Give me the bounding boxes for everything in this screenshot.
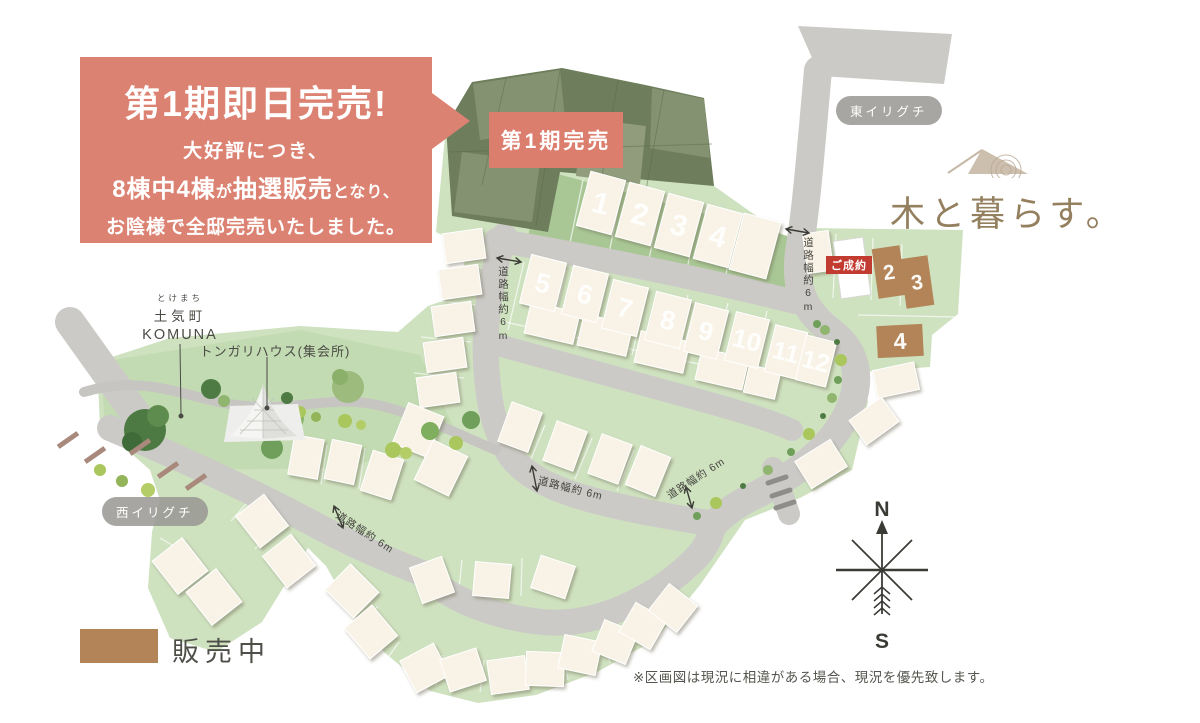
tree-icon (94, 464, 106, 476)
bush-icon (740, 483, 746, 489)
bush-icon (820, 413, 826, 419)
tree-icon (116, 475, 128, 487)
bush-icon (834, 339, 840, 345)
bush-icon (827, 393, 837, 403)
tree-icon (338, 414, 352, 428)
tree-icon (201, 379, 221, 399)
bush-icon (813, 320, 821, 328)
bush-icon (763, 465, 773, 475)
logo-text: 木と暮らす。 (890, 186, 1126, 237)
contracted-badge: ご成約 (826, 256, 872, 274)
road-width-label-2: 道路幅約6m (801, 237, 816, 315)
house (473, 561, 512, 598)
bush-icon (834, 376, 842, 384)
disclaimer-note: ※区画図は現況に相違がある場合、現況を優先致します。 (633, 666, 993, 686)
east-entrance-label: 東イリグチ (836, 96, 942, 125)
bush-icon (835, 354, 847, 366)
callout-line2: 8棟中4棟が抽選販売となり、 (80, 169, 432, 204)
callout-line1: 大好評につき、 (80, 136, 432, 163)
bench-icon (84, 446, 107, 464)
compass-north: N (874, 498, 889, 521)
tree-icon (400, 447, 412, 459)
house (558, 634, 602, 675)
tree-icon (385, 442, 401, 458)
lot-number: 4 (893, 328, 907, 355)
tree-icon (141, 483, 155, 497)
bush-icon (820, 325, 830, 335)
house (423, 337, 467, 372)
compass: N S (826, 490, 938, 655)
legend-for-sale-label: 販売中 (172, 630, 271, 669)
house (288, 435, 324, 480)
town-name: 土気町 (128, 305, 232, 325)
tree-icon (332, 369, 348, 385)
tree-icon (218, 395, 230, 407)
tree-icon (147, 405, 169, 427)
bush-icon (710, 497, 722, 509)
phase1-sold-label: 第1期完売 (489, 112, 623, 168)
callout-title: 第1期即日完売! (80, 57, 432, 127)
house (438, 264, 482, 299)
meeting-house-label: トンガリハウス(集会所) (180, 341, 370, 360)
callout-line3: お陰様で全邸完売いたしました。 (80, 212, 432, 239)
house (442, 228, 486, 263)
road-width-label-1: 道路幅約6m (496, 266, 511, 344)
bush-icon (803, 428, 815, 440)
compass-arrowhead (876, 520, 888, 534)
tree-icon (356, 420, 366, 430)
house (431, 301, 475, 336)
tree-icon (449, 436, 463, 450)
house (487, 656, 529, 695)
tree-icon (462, 411, 480, 429)
phase1-soldout-callout: 第1期即日完売! 大好評につき、 8棟中4棟が抽選販売となり、 お陰様で全邸完売… (80, 57, 432, 243)
lot-map-page: 123456789101112234 第1期即日完売! 大好評につき、 8棟中4… (0, 0, 1200, 723)
tree-icon (311, 412, 321, 422)
tree-icon (281, 392, 293, 404)
house (416, 372, 460, 407)
house (525, 651, 564, 686)
west-entrance-label: 西イリグチ (102, 497, 208, 526)
compass-south: S (875, 630, 889, 653)
bench-icon (57, 431, 80, 449)
town-name-block: とけまち 土気町 KOMUNA (128, 292, 232, 343)
town-furigana: とけまち (128, 292, 232, 304)
tree-icon (421, 422, 439, 440)
bush-icon (693, 512, 701, 520)
legend-for-sale-swatch (80, 629, 158, 663)
logo-roof-icon (940, 146, 1040, 178)
bush-icon (787, 448, 795, 456)
